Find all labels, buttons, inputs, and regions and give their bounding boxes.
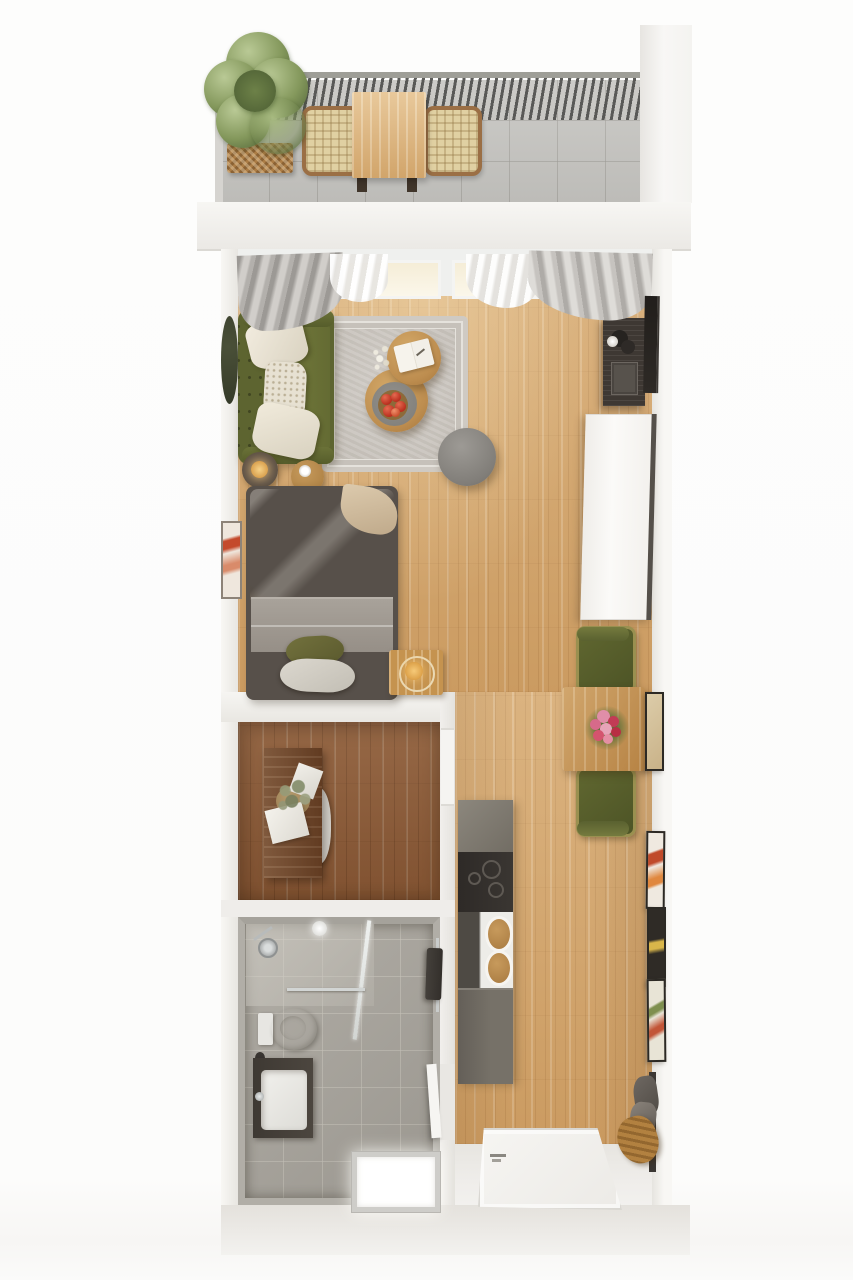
bedroom-wall-art <box>221 521 242 599</box>
cooktop <box>458 852 513 912</box>
burner-ring <box>488 882 504 898</box>
bedside-cube-lamp <box>389 650 443 695</box>
cutting-board <box>485 916 513 952</box>
faucet <box>255 1092 264 1101</box>
floor-lamp <box>242 452 278 488</box>
floor-plan-scene <box>0 0 853 1280</box>
kitchen-sink <box>458 912 513 988</box>
shower-rail <box>287 988 365 991</box>
shower-area <box>246 924 374 1006</box>
apple-bowl <box>378 390 408 420</box>
dining-chair-top <box>576 626 636 694</box>
art-frame-beige <box>645 692 664 771</box>
laptop <box>611 362 638 395</box>
study-plant <box>272 776 316 818</box>
burner-ring <box>468 872 481 885</box>
sofa <box>238 310 334 464</box>
desk-lamp-arm <box>621 340 635 354</box>
toilet <box>271 1008 317 1050</box>
outdoor-table <box>352 92 426 178</box>
outdoor-table-leg <box>357 177 367 192</box>
round-wall-mirror <box>221 316 238 404</box>
bed-cushion-light <box>279 658 355 694</box>
art-frame-light <box>647 979 667 1062</box>
leaning-mirror <box>643 296 660 393</box>
towel <box>425 948 443 1001</box>
outdoor-bench-right <box>424 106 482 176</box>
pouf <box>438 428 496 486</box>
entry-door <box>478 1128 622 1210</box>
bathroom-vanity <box>253 1058 313 1138</box>
curtain-left-sheer <box>330 254 388 302</box>
desk-lamp-bulb <box>607 336 618 347</box>
outdoor-table-leg <box>407 177 417 192</box>
study-wall-bottom <box>221 900 455 917</box>
burner-ring <box>482 860 501 879</box>
balcony-plant <box>204 32 316 162</box>
facade-wall-band <box>197 202 691 251</box>
bathroom-door-opening <box>440 1064 455 1140</box>
vanity-desk <box>603 318 645 406</box>
wardrobe <box>580 414 656 620</box>
bottom-exterior-wall <box>221 1205 690 1255</box>
dining-chair-bottom <box>576 767 636 837</box>
dried-flowers <box>368 344 394 386</box>
cutting-board <box>485 950 513 986</box>
balcony-side-wall <box>640 25 692 203</box>
kitchen-base-cabinet <box>458 988 513 1084</box>
art-frame-red <box>646 831 666 909</box>
ceiling-light <box>312 921 327 936</box>
sink-basin <box>261 1070 307 1130</box>
study-door <box>441 728 454 806</box>
art-frame-dark <box>647 907 666 987</box>
shower-head <box>258 938 278 958</box>
kitchenette <box>458 800 513 1082</box>
bed <box>246 486 398 700</box>
illuminated-floor-panel <box>352 1152 440 1212</box>
bed-duvet <box>250 489 394 601</box>
door-handle <box>490 1154 506 1157</box>
flower-bouquet <box>585 706 629 750</box>
kitchen-counter-top <box>458 800 513 852</box>
